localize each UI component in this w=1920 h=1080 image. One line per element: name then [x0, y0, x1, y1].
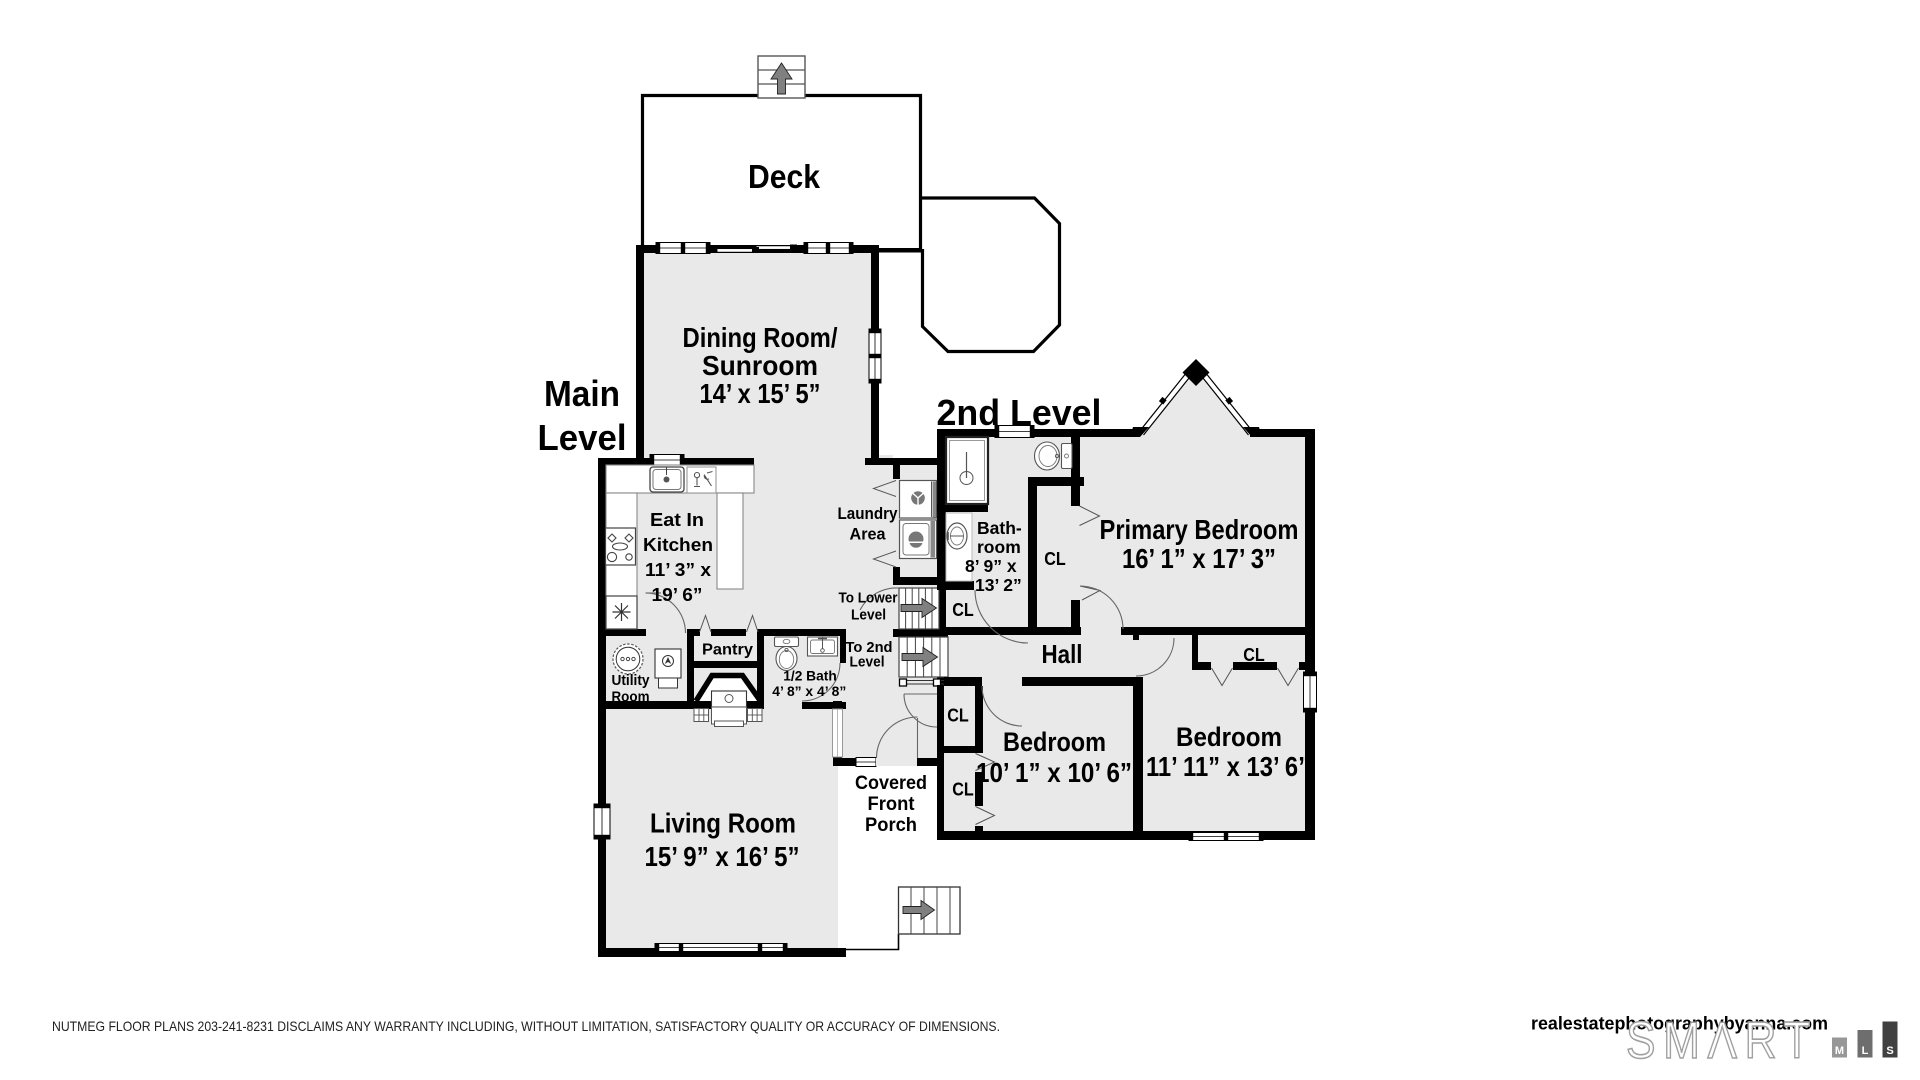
svg-text:Deck: Deck	[748, 158, 821, 195]
svg-text:Hall: Hall	[1042, 639, 1083, 669]
svg-text:2nd Level: 2nd Level	[937, 392, 1102, 433]
svg-text:NUTMEG FLOOR PLANS 203-241-823: NUTMEG FLOOR PLANS 203-241-8231 DISCLAIM…	[52, 1018, 1000, 1034]
svg-text:Pantry: Pantry	[702, 642, 753, 659]
svg-text:Bedroom: Bedroom	[1176, 722, 1282, 752]
svg-text:14’ x 15’ 5”: 14’ x 15’ 5”	[700, 378, 821, 409]
svg-text:Laundry: Laundry	[838, 504, 898, 523]
svg-text:4’ 8” x 4’ 8”: 4’ 8” x 4’ 8”	[772, 684, 846, 699]
svg-text:Bath-: Bath-	[977, 518, 1022, 538]
svg-text:Porch: Porch	[865, 815, 917, 836]
svg-text:Bedroom: Bedroom	[1003, 727, 1106, 757]
svg-text:8’ 9” x: 8’ 9” x	[965, 556, 1017, 576]
svg-text:CL: CL	[952, 780, 974, 800]
svg-text:16’ 1” x 17’ 3”: 16’ 1” x 17’ 3”	[1122, 543, 1276, 574]
svg-text:13’ 2”: 13’ 2”	[975, 575, 1022, 595]
svg-text:10’ 1” x 10’ 6”: 10’ 1” x 10’ 6”	[976, 757, 1132, 788]
svg-text:19’ 6”: 19’ 6”	[652, 584, 703, 605]
svg-text:Covered: Covered	[855, 773, 927, 794]
svg-text:L: L	[1862, 1045, 1869, 1057]
svg-text:Level: Level	[538, 417, 627, 458]
svg-text:To Lower: To Lower	[839, 590, 898, 607]
svg-text:Area: Area	[850, 525, 887, 544]
svg-text:Level: Level	[850, 654, 885, 671]
svg-text:SMΛRT: SMΛRT	[1626, 1012, 1818, 1070]
svg-text:S: S	[1886, 1045, 1893, 1057]
svg-text:Room: Room	[612, 689, 650, 706]
svg-text:Dining Room/: Dining Room/	[683, 322, 838, 353]
svg-text:1/2 Bath: 1/2 Bath	[783, 669, 837, 684]
svg-text:CL: CL	[1243, 645, 1265, 665]
svg-text:15’ 9” x 16’ 5”: 15’ 9” x 16’ 5”	[645, 841, 800, 872]
svg-text:Sunroom: Sunroom	[702, 350, 818, 381]
svg-text:M: M	[1835, 1045, 1844, 1057]
svg-text:CL: CL	[1044, 549, 1066, 569]
svg-text:Kitchen: Kitchen	[643, 534, 713, 555]
svg-text:Front: Front	[868, 794, 916, 815]
svg-text:Primary Bedroom: Primary Bedroom	[1100, 514, 1299, 545]
svg-text:CL: CL	[947, 706, 969, 726]
svg-text:Living Room: Living Room	[650, 808, 796, 839]
svg-text:Utility: Utility	[612, 672, 651, 689]
svg-text:11’ 3” x: 11’ 3” x	[645, 559, 712, 580]
svg-text:Level: Level	[851, 607, 886, 624]
svg-text:Main: Main	[544, 373, 620, 414]
svg-text:room: room	[977, 537, 1021, 557]
svg-text:11’ 11” x 13’ 6”: 11’ 11” x 13’ 6”	[1146, 751, 1310, 782]
svg-text:Eat In: Eat In	[650, 510, 704, 530]
svg-text:CL: CL	[952, 600, 974, 620]
